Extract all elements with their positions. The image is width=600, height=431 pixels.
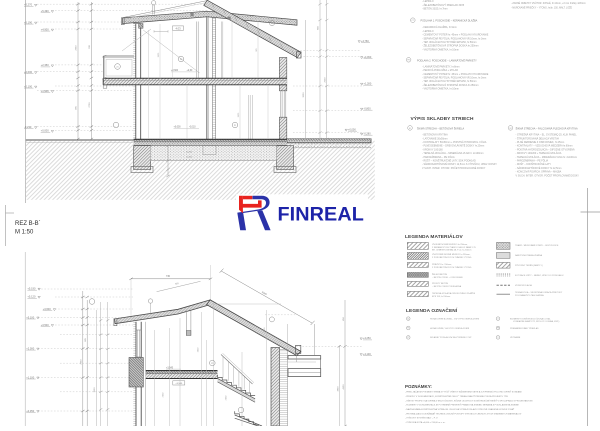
svg-text:P7: P7 bbox=[412, 20, 414, 22]
svg-text:Z1: Z1 bbox=[407, 337, 409, 339]
svg-text:EPS 70F, hr.150mm: EPS 70F, hr.150mm bbox=[432, 295, 450, 298]
svg-text:3800: 3800 bbox=[337, 386, 339, 392]
svg-text:- KONCOVÁ POVRCH. ÚPRAVA – MAĽ: - KONCOVÁ POVRCH. ÚPRAVA – MAĽBA bbox=[516, 171, 562, 174]
svg-text:- MUROVANÉ PRIEČKY – YTONG, hr: - MUROVANÉ PRIEČKY – YTONG, hrúb. 150, M… bbox=[511, 7, 573, 10]
svg-text:- TEP. IZOLÁCIA POLYSTYRÉN EP: - TEP. IZOLÁCIA POLYSTYRÉN EPS150, hr.50… bbox=[422, 80, 476, 83]
svg-text:+3,600: +3,600 bbox=[43, 307, 52, 311]
svg-text:- KERAMICKÁ DLAŽBA, hr.9mm: - KERAMICKÁ DLAŽBA, hr.9mm bbox=[422, 26, 457, 29]
svg-text:- KONTRALATY – VZDUCHOVÁ MEDZE: - KONTRALATY – VZDUCHOVÁ MEDZERA hr.60mm bbox=[516, 145, 573, 148]
svg-text:TESNÁ FÓLIA – SKONČENÁ DORAZ A: TESNÁ FÓLIA – SKONČENÁ DORAZ A PRIETOKY bbox=[515, 291, 563, 294]
svg-text:- ZADNÉ OMIETKY VNÚTOR. ZVISLÉ: - ZADNÉ OMIETKY VNÚTOR. ZVISLÉ, hr.10mm,… bbox=[511, 2, 586, 5]
svg-text:- PRIEČKY V DOKUMENTÁCII „KONŠ: - PRIEČKY V DOKUMENTÁCII „KONŠTRUKČNÉ CE… bbox=[405, 395, 508, 398]
svg-text:Z KERAMICKÝCH TVAROV. HELUZ F: Z KERAMICKÝCH TVAROV. HELUZ FAMILY 25 bbox=[432, 246, 477, 249]
svg-text:+2,350: +2,350 bbox=[41, 63, 50, 67]
svg-text:+3,545: +3,545 bbox=[175, 383, 183, 385]
svg-text:VNÚTORNÉ NOSNÉ MURIVO hr.250mm: VNÚTORNÉ NOSNÉ MURIVO hr.250mm, bbox=[432, 253, 471, 256]
svg-text:- ŽELEZOBETÓNOVÝ PREKLAD 30X5: - ŽELEZOBETÓNOVÝ PREKLAD 30X5 bbox=[422, 4, 465, 7]
svg-text:- KROKVY 100/200 + TEPELNÁ IZO: - KROKVY 100/200 + TEPELNÁ IZOLÁCIA bbox=[516, 152, 562, 155]
svg-text:V: V bbox=[497, 337, 498, 339]
svg-text:PODLAHA 2. POSCHODIE – LAMINÁT: PODLAHA 2. POSCHODIE – LAMINÁTOVÉ PARKET… bbox=[417, 59, 477, 62]
svg-text:- PAROZÁBRANA – PE FÓLIA: - PAROZÁBRANA – PE FÓLIA bbox=[516, 160, 549, 163]
svg-text:4150: 4150 bbox=[343, 384, 345, 390]
svg-text:PREFABRIKOVANÝ PREKLAD: PREFABRIKOVANÝ PREKLAD bbox=[510, 327, 539, 330]
svg-text:- POISTNÁ HYDROIZOLÁCIA – DIFÚ: - POISTNÁ HYDROIZOLÁCIA – DIFÚZNE OTVORE… bbox=[516, 148, 576, 151]
svg-text:+5,190: +5,190 bbox=[27, 287, 36, 291]
svg-text:2750: 2750 bbox=[89, 102, 91, 108]
svg-text:- TEP. IZOLÁCIA POLYSTYRÉN EP: - TEP. IZOLÁCIA POLYSTYRÉN EPS150, hr.50… bbox=[422, 41, 476, 44]
svg-text:- SEPARAČNÁ PE FÓLIA, PODLAHOV: - SEPARAČNÁ PE FÓLIA, PODLAHOVÁ VR.10mm,… bbox=[422, 37, 486, 40]
svg-text:P1: P1 bbox=[407, 328, 409, 330]
svg-text:BR. CEMENTOVÁ MALTA, P+D, hr.2: BR. CEMENTOVÁ MALTA, P+D, hr.250mm bbox=[432, 249, 472, 252]
svg-text:TEPELNÁ IZOLÁCIA OBVODOVÉHO PL: TEPELNÁ IZOLÁCIA OBVODOVÉHO PLÁŠŤA bbox=[432, 292, 476, 295]
svg-text:- VNÚTORNÁ OMIETKA, hr.10mm: - VNÚTORNÁ OMIETKA, hr.10mm bbox=[422, 88, 459, 91]
svg-text:Z POROBETÓNOVÝCH TVARNÍC YTONG: Z POROBETÓNOVÝCH TVARNÍC YTONG bbox=[432, 266, 472, 269]
svg-text:3050: 3050 bbox=[303, 92, 305, 98]
svg-text:- VÝŠKOVÁ KÓTA ±0,000 = 216,00: - VÝŠKOVÁ KÓTA ±0,000 = 216,00 m n. m. bbox=[405, 421, 446, 424]
svg-text:+3,500: +3,500 bbox=[41, 323, 50, 327]
svg-text:V SUCH. INTER. OTVOR. POČET PR: V SUCH. INTER. OTVOR. POČET PROFILOVANÉ … bbox=[516, 174, 580, 177]
svg-text:+5,190: +5,190 bbox=[24, 20, 33, 24]
svg-text:VETRANIE: VETRANIE bbox=[510, 336, 521, 339]
svg-text:VONKAJŠIE KAMPOTY, SPOLOČ. KOM: VONKAJŠIE KAMPOTY, SPOLOČ. KOMBA, KW1) bbox=[513, 320, 560, 323]
svg-text:+5,120: +5,120 bbox=[27, 295, 36, 299]
svg-text:-0,410: -0,410 bbox=[186, 157, 193, 159]
svg-text:- LEPIDLO: - LEPIDLO bbox=[422, 30, 434, 33]
svg-text:Z POROBETÓNOVÝCH TVARNÍC YTONG: Z POROBETÓNOVÝCH TVARNÍC YTONG bbox=[432, 256, 472, 259]
svg-text:+2,000: +2,000 bbox=[26, 346, 35, 350]
svg-text:- PLNÉ DEBNENIE Z OSB DOSIEK,: - PLNÉ DEBNENIE Z OSB DOSIEK, hr.25mm bbox=[516, 141, 565, 144]
svg-text:2950: 2950 bbox=[76, 45, 78, 51]
svg-text:- ROZMERY V DOKUMENTÁCII JE PO: - ROZMERY V DOKUMENTÁCII JE POTREBNÉ PRE… bbox=[405, 404, 519, 407]
svg-text:- ROŠT – KONŠTRUKČNÉ LATY, SDK: - ROŠT – KONŠTRUKČNÉ LATY, SDK PODHĽAD bbox=[422, 160, 476, 163]
svg-text:- CEMENTOVÝ POTER hr. 45mm + P: - CEMENTOVÝ POTER hr. 45mm + PODLAH.VYKU… bbox=[422, 73, 489, 76]
svg-text:PODLAHA 1. POSCHODIE – KERAMIC: PODLAHA 1. POSCHODIE – KERAMICKÁ DLAŽBA bbox=[421, 20, 478, 23]
svg-text:PÔVODNÝ TERÉN (RASTLÝ): PÔVODNÝ TERÉN (RASTLÝ) bbox=[515, 264, 543, 267]
svg-text:-0,230: -0,230 bbox=[24, 125, 32, 129]
svg-text:+0,000: +0,000 bbox=[41, 129, 50, 133]
svg-text:4.03: 4.03 bbox=[175, 26, 181, 30]
svg-text:- TEPELNÁ IZOLÁCIA – MINERÁLNA: - TEPELNÁ IZOLÁCIA – MINERÁLNA VLNA hr. … bbox=[422, 152, 483, 155]
svg-text:- BETÓN 33/25, hr.7mm: - BETÓN 33/25, hr.7mm bbox=[422, 8, 448, 11]
svg-text:S1: S1 bbox=[409, 128, 411, 130]
svg-text:– BETÓN C16/20 PODKLADNÁ: – BETÓN C16/20 PODKLADNÁ bbox=[432, 285, 462, 288]
svg-text:+5,270: +5,270 bbox=[24, 3, 33, 7]
svg-text:LEGENDA MATERIÁLOV: LEGENDA MATERIÁLOV bbox=[405, 233, 463, 240]
svg-text:HYDROIZOLÁCIA: HYDROIZOLÁCIA bbox=[515, 284, 532, 287]
svg-text:+1,100: +1,100 bbox=[26, 375, 35, 379]
svg-text:- KONTRALATY 50x50mm + POISTNÁ: - KONTRALATY 50x50mm + POISTNÁ HYDROIZOL… bbox=[422, 141, 487, 144]
svg-text:P1: P1 bbox=[234, 125, 236, 127]
svg-text:- PAROZÁBRANA – PE FÓLIA: - PAROZÁBRANA – PE FÓLIA bbox=[422, 156, 455, 159]
svg-text:ŠIKMÁ STRECHA – BETÓNOVÁ ŠKRID: ŠIKMÁ STRECHA – BETÓNOVÁ ŠKRIDLA bbox=[417, 128, 465, 131]
svg-text:KOTVIACE LIŠTY – NEREZ, UPEV.: KOTVIACE LIŠTY – NEREZ, UPEV. DO PODKLAD… bbox=[515, 274, 564, 277]
svg-text:2630: 2630 bbox=[324, 77, 326, 83]
svg-text:-0,210: -0,210 bbox=[186, 152, 193, 154]
svg-text:- LAMINÁTOVÉ PARKETY, hr.8mm: - LAMINÁTOVÉ PARKETY, hr.8mm bbox=[422, 65, 459, 68]
svg-text:P8: P8 bbox=[180, 59, 182, 61]
svg-text:730: 730 bbox=[166, 275, 171, 278]
svg-text:PROSTÝ BETÓN: PROSTÝ BETÓN bbox=[432, 282, 449, 285]
svg-text:REZ B-B´: REZ B-B´ bbox=[15, 221, 41, 227]
svg-text:Z1: Z1 bbox=[116, 66, 118, 68]
svg-text:- LEPIDLO: - LEPIDLO bbox=[422, 0, 434, 3]
svg-text:V SUCH. INTER. OTVOR. POČET PR: V SUCH. INTER. OTVOR. POČET PROFILOVANÉ … bbox=[422, 167, 486, 170]
svg-text:ELEMENTY KONŠTRUKCIÍ ČELNÁ LOG: ELEMENTY KONŠTRUKCIÍ ČELNÁ LOGIA, bbox=[510, 317, 551, 320]
svg-text:P8: P8 bbox=[407, 60, 409, 62]
svg-text:POLÓHAMIČKY ČASť KAPINÁ: POLÓHAMIČKY ČASť KAPINÁ bbox=[515, 294, 544, 297]
svg-text:P1: P1 bbox=[211, 363, 213, 365]
svg-text:POZNÁMKY:: POZNÁMKY: bbox=[405, 383, 432, 389]
svg-text:1500: 1500 bbox=[94, 387, 96, 393]
svg-text:VNODNÉ NOSNÉ MURIVO hr.250mm,: VNODNÉ NOSNÉ MURIVO hr.250mm, bbox=[432, 243, 468, 246]
svg-text:- NAVRHOVANÁ KONŠTRUKČNÁ VÝŠKA: - NAVRHOVANÁ KONŠTRUKČNÁ VÝŠKA OB. CELKO… bbox=[405, 408, 515, 411]
svg-text:NÁSYP/ZHUTNENÁ ZEMINA: NÁSYP/ZHUTNENÁ ZEMINA bbox=[515, 254, 543, 257]
svg-text:PN: PN bbox=[497, 328, 499, 330]
svg-text:PRIEČKY hr. 150mm,: PRIEČKY hr. 150mm, bbox=[432, 263, 452, 266]
svg-text:- LATOVANIE 30x50mm: - LATOVANIE 30x50mm bbox=[422, 137, 448, 140]
svg-text:- VÝŠKOVÝ SYSTÉM: BALT – P. V.: - VÝŠKOVÝ SYSTÉM: BALT – P. V. bbox=[405, 417, 438, 420]
svg-text:- PENOVÁ PODLOŽKA + MYLAR: - PENOVÁ PODLOŽKA + MYLAR bbox=[422, 69, 458, 72]
svg-text:+2,100: +2,100 bbox=[24, 84, 33, 88]
svg-text:- VŠETKY PROFILY SA OVERIA V S: - VŠETKY PROFILY SA OVERIA V SKUTOČNOSTI… bbox=[405, 399, 533, 402]
svg-text:S1: S1 bbox=[271, 23, 273, 25]
svg-text:- ŽELEZOBETÓNOVÁ STROPNÁ DOSKA: - ŽELEZOBETÓNOVÁ STROPNÁ DOSKA hr.250mm bbox=[422, 84, 478, 87]
svg-text:+0,350: +0,350 bbox=[26, 409, 35, 413]
svg-text:- ŽELEZOBETÓNOVÁ STROPNÁ DOSKA: - ŽELEZOBETÓNOVÁ STROPNÁ DOSKA hr.250mm bbox=[422, 45, 478, 48]
svg-text:+5,100: +5,100 bbox=[26, 315, 35, 319]
svg-text:S2: S2 bbox=[509, 128, 511, 130]
svg-text:- TEPELNÁ IZOLÁCIA – MINERÁLNA: - TEPELNÁ IZOLÁCIA – MINERÁLNA VLNA hr. … bbox=[516, 156, 577, 159]
svg-text:+2,600: +2,600 bbox=[24, 70, 33, 74]
svg-text:M 1:50: M 1:50 bbox=[15, 229, 34, 235]
svg-text:- VNÚTORNÁ OMIETKA, hr.10mm: - VNÚTORNÁ OMIETKA, hr.10mm bbox=[422, 48, 459, 51]
svg-text:- SÁDROKARTÓNOVÉ DOSKY 12,5mm: - SÁDROKARTÓNOVÉ DOSKY 12,5mm S VÝPLŇOU,… bbox=[422, 163, 497, 166]
svg-text:HORÁ DVERE A OKNÁ – VIď VÝPIS: HORÁ DVERE A OKNÁ – VIď VÝPIS OKIEN A DV… bbox=[430, 317, 480, 320]
svg-text:- ROŠT – KONŠTRUKČNÉ LATY: - ROŠT – KONŠTRUKČNÉ LATY bbox=[516, 163, 552, 166]
svg-text:HORÁ DVERE, VIď STYK OKIEN A D: HORÁ DVERE, VIď STYK OKIEN A DVERÍ bbox=[430, 327, 470, 330]
svg-text:- SÁDROKARTÓNOVÉ DOSKY hr.12,5: - SÁDROKARTÓNOVÉ DOSKY hr.12,5mm bbox=[516, 167, 562, 170]
svg-text:TRÁMY / MUROVANÉ STENY – JESTV: TRÁMY / MUROVANÉ STENY – JESTVUJÚCE bbox=[515, 244, 559, 247]
svg-text:S1: S1 bbox=[407, 318, 409, 320]
svg-text:- SEPARAČNÁ PE FÓLIA, PODLAHOV: - SEPARAČNÁ PE FÓLIA, PODLAHOVÁ VR.10mm,… bbox=[422, 77, 486, 80]
svg-text:- PRED ZAČATÍM VÝSTAVBY TREBA: - PRED ZAČATÍM VÝSTAVBY TREBA VYTÝČIŤ VŠ… bbox=[405, 391, 522, 394]
svg-text:- ŠTRUKTÚROVANÁ DELIACA VRSTVA: - ŠTRUKTÚROVANÁ DELIACA VRSTVA bbox=[516, 137, 560, 140]
svg-text:ŠIKMÁ STRECHA – FALCOVANÁ PLEC: ŠIKMÁ STRECHA – FALCOVANÁ PLECHOVÁ KRYTI… bbox=[516, 128, 578, 131]
svg-text:- PRI REALIZÁCII DODRŽIAVAŤ TE: - PRI REALIZÁCII DODRŽIAVAŤ TECHNOLOGICK… bbox=[405, 412, 522, 415]
svg-text:FINREAL: FINREAL bbox=[278, 204, 364, 226]
svg-text:- PLNÉ DEBNENIE – DREVOVLÁKNIT: - PLNÉ DEBNENIE – DREVOVLÁKNITÉ DOSKY hr… bbox=[422, 145, 484, 148]
svg-text:+5,490: +5,490 bbox=[41, 9, 50, 13]
svg-text:2950: 2950 bbox=[80, 359, 82, 365]
svg-text:+4,900: +4,900 bbox=[41, 27, 50, 31]
svg-text:- CEMENTOVÝ POTER hr. 45mm + P: - CEMENTOVÝ POTER hr. 45mm + PODLAH.VYKU… bbox=[422, 34, 489, 37]
svg-text:VÝPIS SKLADBY STRIECH: VÝPIS SKLADBY STRIECH bbox=[411, 115, 474, 122]
svg-text:ŽELEZOBETÓN: ŽELEZOBETÓN bbox=[432, 273, 448, 276]
svg-text:- STREŠNÁ KRYTINA – EL. SYSTEM: - STREŠNÁ KRYTINA – EL. SYSTEMIQ 25, KLI… bbox=[516, 134, 578, 137]
svg-text:- KROKVY 100/180: - KROKVY 100/180 bbox=[422, 148, 443, 151]
svg-text:SKLADBY PODLÁH VIď NA VÝKRESE: SKLADBY PODLÁH VIď NA VÝKRESE 2. NP bbox=[430, 336, 472, 339]
svg-text:+1,900: +1,900 bbox=[41, 89, 50, 93]
svg-text:– BETÓN C25/30 + OCEĽ B500B: – BETÓN C25/30 + OCEĽ B500B bbox=[432, 276, 463, 279]
svg-text:- BETÓNOVÁ KRYTINA: - BETÓNOVÁ KRYTINA bbox=[422, 134, 448, 137]
